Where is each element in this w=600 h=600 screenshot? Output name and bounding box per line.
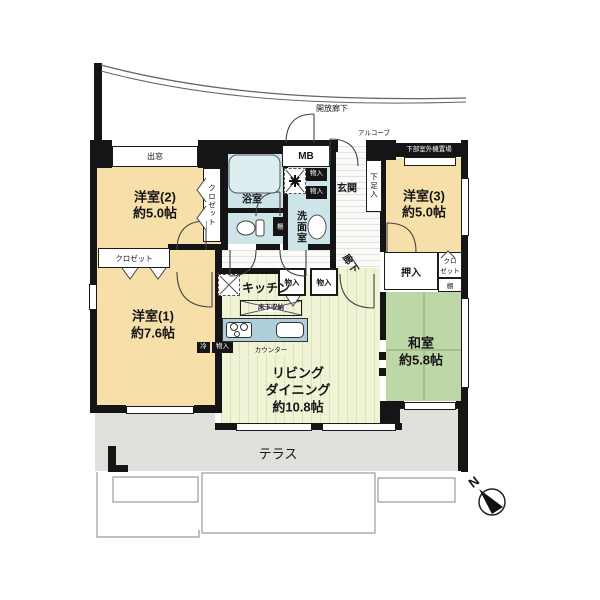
fan-icons xyxy=(289,175,301,187)
western2-door-arc xyxy=(177,221,206,250)
living-door-arc xyxy=(340,274,374,308)
compass-n-label: N xyxy=(465,473,482,491)
western3-door-arc xyxy=(387,223,416,252)
compass: N xyxy=(465,473,505,515)
floor-plan: 出窓 MB 下部室外機置場 クロゼット クロゼット 下足入 押入 クロ ゼット … xyxy=(0,0,600,600)
open-corridor-curve xyxy=(101,65,466,103)
folding-door-marks xyxy=(122,178,455,306)
plan-overlay: N xyxy=(0,0,600,600)
washbasin-icon xyxy=(308,215,326,239)
bathtub-icon xyxy=(229,155,280,193)
alcove-door-arc xyxy=(286,114,314,143)
door-arcs xyxy=(177,114,416,308)
bathroom-door-arc xyxy=(256,192,280,216)
western1-door-arc xyxy=(177,272,212,307)
toilet-door-arc xyxy=(230,250,256,276)
washroom-door-arc xyxy=(280,250,306,276)
garden-outlines xyxy=(97,472,455,537)
entrance-door-arc xyxy=(330,139,358,166)
toilet-icon xyxy=(237,220,264,236)
stove-burners xyxy=(231,324,248,337)
fan-icon xyxy=(289,175,301,187)
